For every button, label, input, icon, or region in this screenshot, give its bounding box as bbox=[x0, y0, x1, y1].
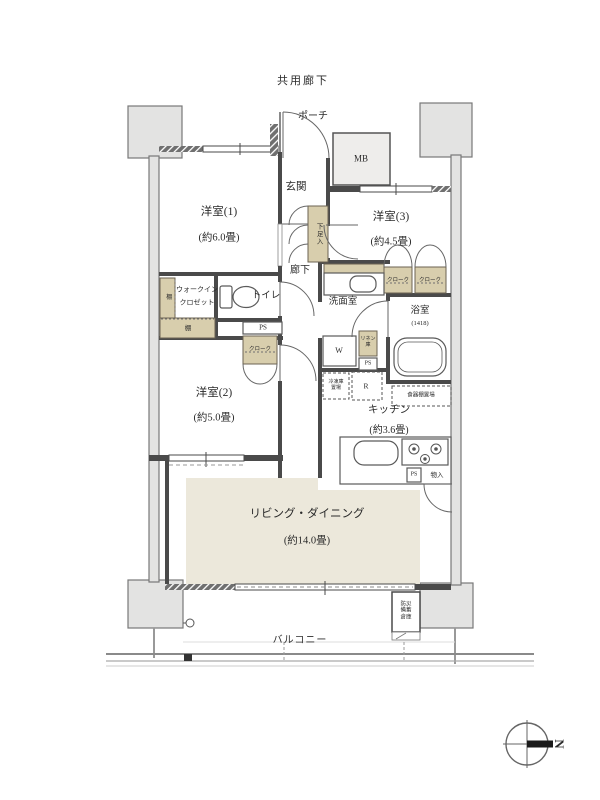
label-closet-c: クローク bbox=[249, 347, 271, 354]
label-ps-3: PS bbox=[411, 471, 418, 479]
label-bedroom3-size: (約4.5畳) bbox=[370, 235, 411, 248]
label-kitchen-name: キッチン bbox=[368, 403, 410, 416]
label-wic-line2: クロゼット bbox=[180, 299, 215, 308]
floor-plan-canvas: 共用廊下 ポーチ MB 玄関 下足入 洋室(1) (約6.0畳) 洋室(3) (… bbox=[0, 0, 600, 800]
label-common-corridor: 共用廊下 bbox=[277, 75, 329, 89]
label-storage: 物入 bbox=[431, 472, 444, 480]
label-toilet: トイレ bbox=[252, 291, 281, 303]
label-living-dining-size: (約14.0畳) bbox=[284, 534, 330, 547]
compass-icon bbox=[503, 720, 553, 768]
label-bathroom-name: 浴室 bbox=[410, 306, 429, 318]
label-washroom: 洗面室 bbox=[329, 297, 358, 309]
label-wic-line1: ウォークイン bbox=[176, 286, 218, 295]
label-cupboard-space: 食器棚置場 bbox=[407, 393, 435, 400]
label-linen: リネン庫 bbox=[360, 337, 376, 350]
label-bedroom2-name: 洋室(2) bbox=[196, 386, 232, 400]
label-freezer-space: 冷凍庫置場 bbox=[328, 380, 345, 393]
label-closet-a: クローク bbox=[387, 278, 409, 285]
label-kitchen-size: (約3.6畳) bbox=[369, 425, 408, 438]
label-shelf-bottom: 棚 bbox=[185, 325, 192, 333]
label-closet-b: クローク bbox=[419, 278, 441, 285]
label-ps-1: PS bbox=[259, 324, 267, 333]
label-porch: ポーチ bbox=[298, 111, 328, 124]
label-bathroom-size: (1418) bbox=[411, 320, 428, 328]
label-corridor: 廊下 bbox=[290, 265, 310, 278]
label-shoe-box: 下足入 bbox=[314, 223, 322, 246]
label-refrigerator: R bbox=[363, 381, 368, 390]
label-disaster-storage: 防災備蓄倉庫 bbox=[400, 602, 412, 621]
label-living-dining-name: リビング・ダイニング bbox=[250, 507, 365, 521]
label-bedroom1-size: (約6.0畳) bbox=[198, 231, 239, 244]
label-washer: W bbox=[335, 346, 343, 356]
label-meter-box: MB bbox=[354, 153, 368, 164]
living-dining-floor bbox=[186, 478, 420, 586]
label-bedroom3-name: 洋室(3) bbox=[373, 210, 409, 224]
label-bedroom1-name: 洋室(1) bbox=[201, 205, 237, 219]
label-entrance: 玄関 bbox=[286, 180, 307, 193]
label-ps-2: PS bbox=[365, 360, 372, 368]
label-balcony: バルコニー bbox=[273, 635, 328, 648]
label-shelf-left: 棚 bbox=[163, 294, 171, 301]
label-compass-north: N bbox=[551, 739, 567, 748]
label-bedroom2-size: (約5.0畳) bbox=[193, 411, 234, 424]
